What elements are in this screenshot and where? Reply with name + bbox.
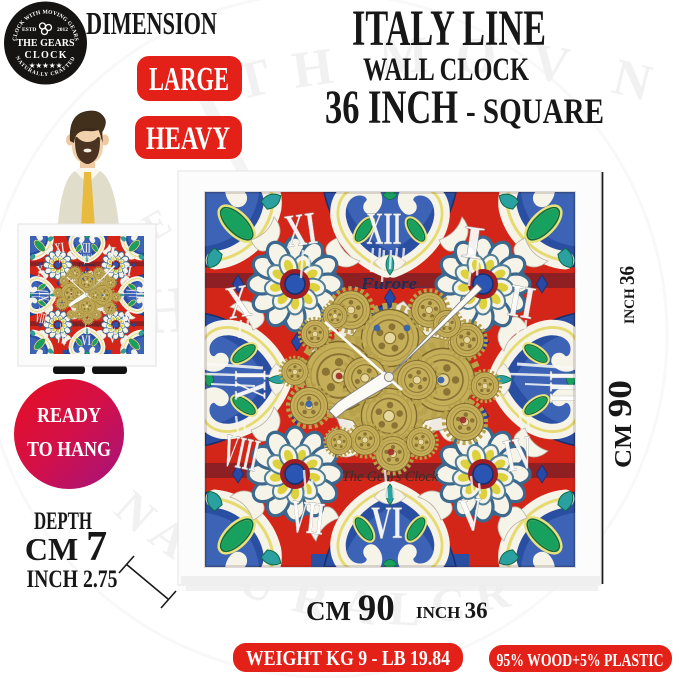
svg-text:95% WOOD+5% PLASTIC: 95% WOOD+5% PLASTIC bbox=[497, 650, 664, 670]
svg-text:36 INCH: 36 INCH bbox=[325, 81, 458, 134]
svg-text:READY: READY bbox=[37, 403, 101, 427]
svg-text:TO HANG: TO HANG bbox=[27, 437, 111, 461]
svg-text:INCH 36: INCH 36 bbox=[615, 266, 639, 324]
svg-text:CM 7: CM 7 bbox=[25, 524, 107, 570]
svg-text:WEIGHT KG 9 - LB 19.84: WEIGHT KG 9 - LB 19.84 bbox=[246, 646, 450, 670]
svg-text:N: N bbox=[607, 48, 657, 112]
svg-text:THE GEARS: THE GEARS bbox=[17, 38, 75, 49]
svg-text:ITALY LINE: ITALY LINE bbox=[352, 1, 546, 57]
svg-text:HEAVY: HEAVY bbox=[146, 121, 230, 157]
svg-text:ESTD: ESTD bbox=[22, 27, 36, 33]
svg-text:DIMENSION: DIMENSION bbox=[86, 5, 217, 41]
svg-text:- SQUARE: - SQUARE bbox=[466, 91, 604, 131]
svg-text:LARGE: LARGE bbox=[149, 61, 229, 98]
svg-text:2012: 2012 bbox=[57, 27, 68, 33]
svg-text:INCH 2.75: INCH 2.75 bbox=[27, 566, 118, 593]
svg-text:CLOCK: CLOCK bbox=[25, 50, 67, 61]
svg-text:CM 90: CM 90 bbox=[602, 380, 639, 468]
svg-text:★★★★★: ★★★★★ bbox=[29, 61, 63, 70]
